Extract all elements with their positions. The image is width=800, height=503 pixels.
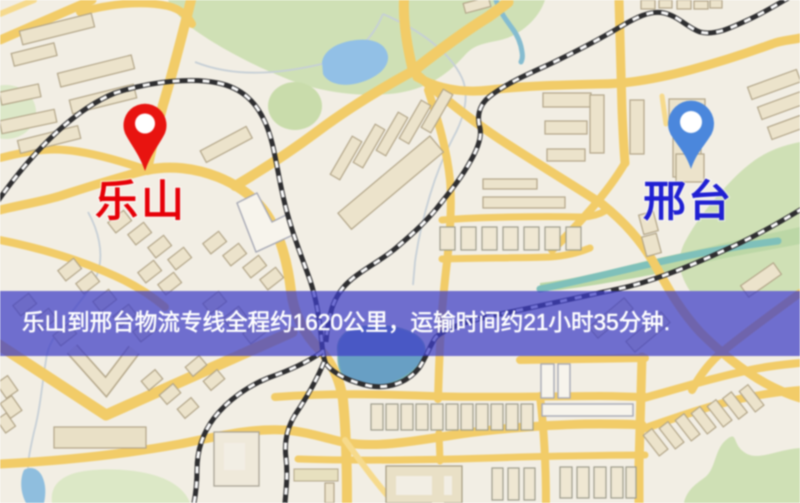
svg-text:邢台: 邢台 bbox=[643, 178, 733, 226]
svg-text:乐山: 乐山 bbox=[95, 178, 187, 226]
svg-text:乐山到邢台物流专线全程约1620公里，运输时间约21小时35: 乐山到邢台物流专线全程约1620公里，运输时间约21小时35分钟. bbox=[22, 309, 670, 335]
